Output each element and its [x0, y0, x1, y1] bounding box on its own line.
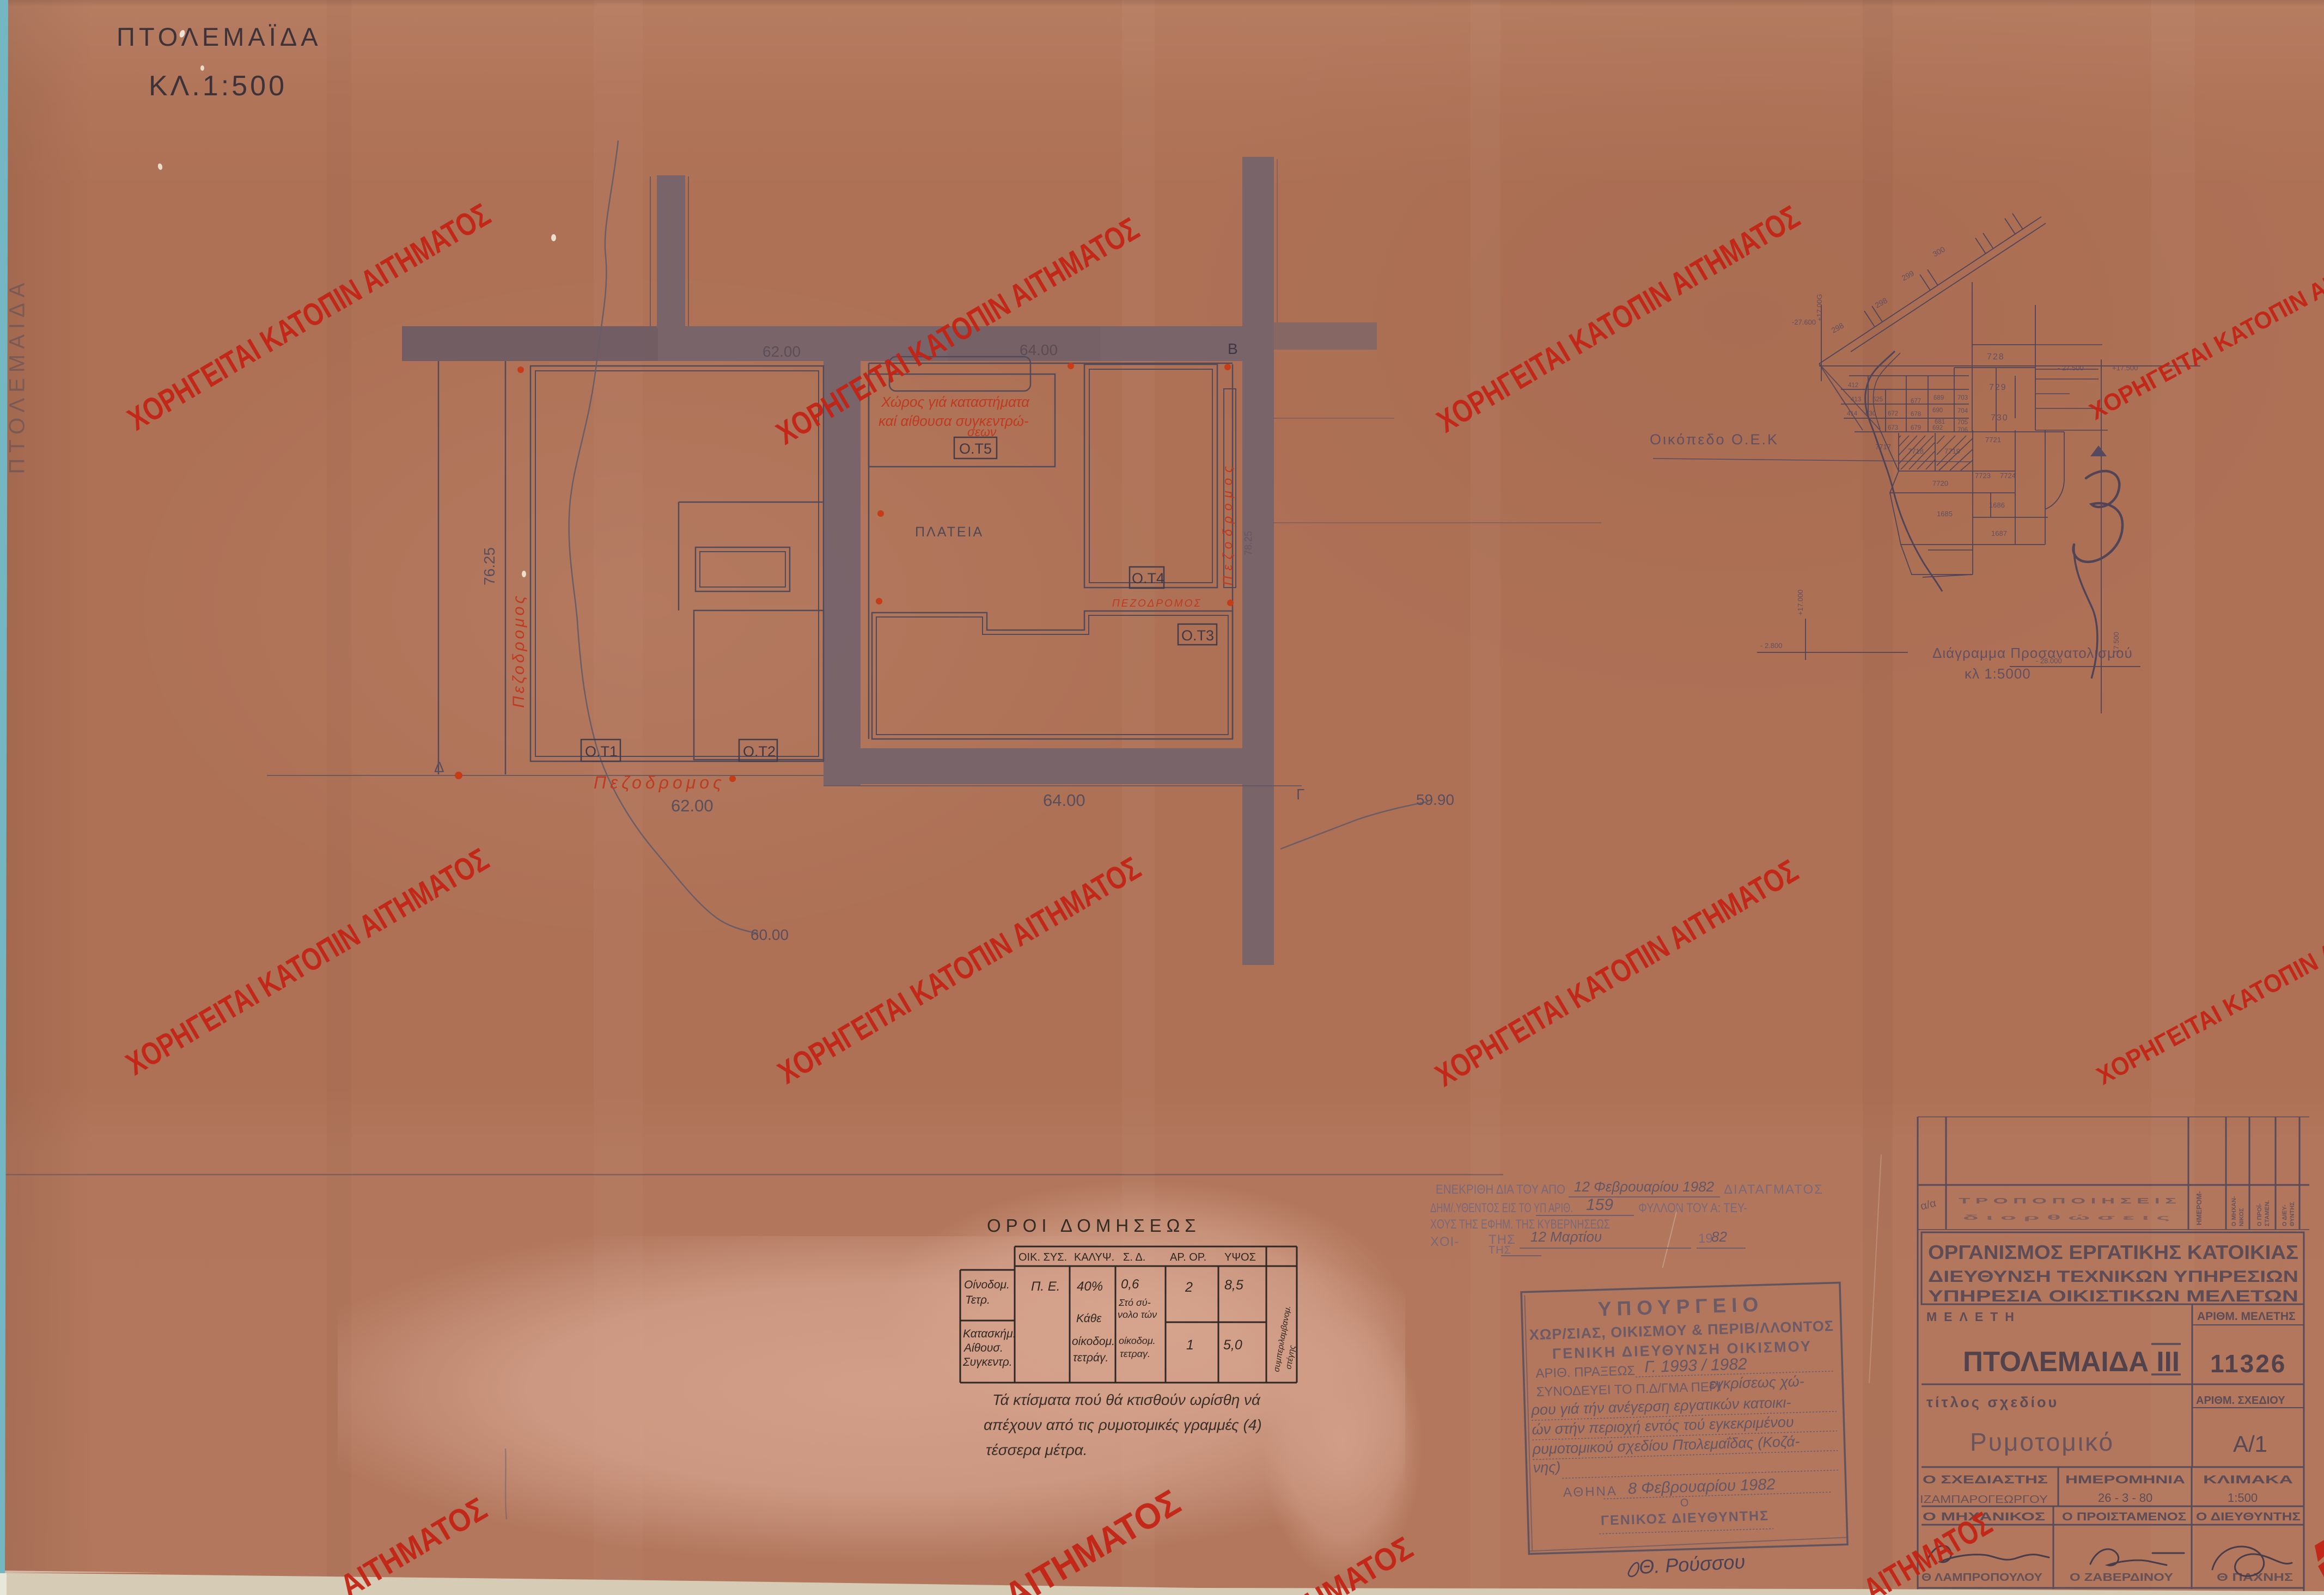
svg-text:ΑΙΤΗΜΑΤΟΣ: ΑΙΤΗΜΑΤΟΣ — [998, 1482, 1187, 1595]
svg-text:ΑΙΤΗΜΑΤΟΣ: ΑΙΤΗΜΑΤΟΣ — [1260, 1530, 1419, 1595]
svg-text:ΑΙΤΗΜΑΤΟΣ: ΑΙΤΗΜΑΤΟΣ — [334, 1491, 493, 1595]
svg-text:ΧΟΡΗΓΕΙΤΑΙ ΚΑΤΟΠΙΝ ΑΙΤΗΜΑΤΟΣ: ΧΟΡΗΓΕΙΤΑΙ ΚΑΤΟΠΙΝ ΑΙΤΗΜΑΤΟΣ — [120, 841, 495, 1082]
svg-text:ΧΟΡΗΓΕΙΤΑΙ ΚΑΤΟΠΙΝ ΑΙΤΗΜΑΤΟΣ: ΧΟΡΗΓΕΙΤΑΙ ΚΑΤΟΠΙΝ ΑΙΤΗΜΑΤΟΣ — [1431, 199, 1806, 439]
svg-text:ΧΟΡΗΓΕΙΤΑΙ ΚΑΤΟΠΙΝ ΑΙΤΗΜΑΤΟΣ: ΧΟΡΗΓΕΙΤΑΙ ΚΑΤΟΠΙΝ ΑΙΤΗΜΑΤΟΣ — [771, 211, 1145, 451]
svg-text:ΧΟΡΗΓΕΙΤΑΙ ΚΑΤΟΠΙΝ ΑΙΤΗΜΑΤΟΣ: ΧΟΡΗΓΕΙΤΑΙ ΚΑΤΟΠΙΝ ΑΙΤΗΜΑΤΟΣ — [2085, 220, 2324, 425]
svg-text:ΑΙΤΗΜΑΤΟΣ: ΑΙΤΗΜΑΤΟΣ — [1858, 1505, 1998, 1595]
svg-text:ΧΟΡΗΓΕΙΤΑΙ ΚΑΤΟΠΙΝ ΑΙΤΗΜΑΤΟΣ: ΧΟΡΗΓΕΙΤΑΙ ΚΑΤΟΠΙΝ ΑΙΤΗΜΑΤΟΣ — [122, 197, 497, 437]
svg-text:ΧΟΡΗΓΕΙΤΑΙ ΚΑΤΟΠΙΝ ΑΙΤΗΜΑΤΟΣ: ΧΟΡΗΓΕΙΤΑΙ ΚΑΤΟΠΙΝ ΑΙΤΗΜΑΤΟΣ — [1430, 853, 1804, 1093]
svg-text:ΧΟΡΗΓΕΙΤΑΙ ΚΑΤΟΠΙΝ ΑΙΤΗΜΑΤΟΣ: ΧΟΡΗΓΕΙΤΑΙ ΚΑΤΟΠΙΝ ΑΙΤΗΜΑΤΟΣ — [2092, 881, 2324, 1090]
svg-text:ΧΟΡΗΓΕΙΤΑΙ ΚΑΤΟΠΙΝ ΑΙΤΗΜΑΤΟΣ: ΧΟΡΗΓΕΙΤΑΙ ΚΑΤΟΠΙΝ ΑΙΤΗΜΑΤΟΣ — [772, 850, 1147, 1091]
